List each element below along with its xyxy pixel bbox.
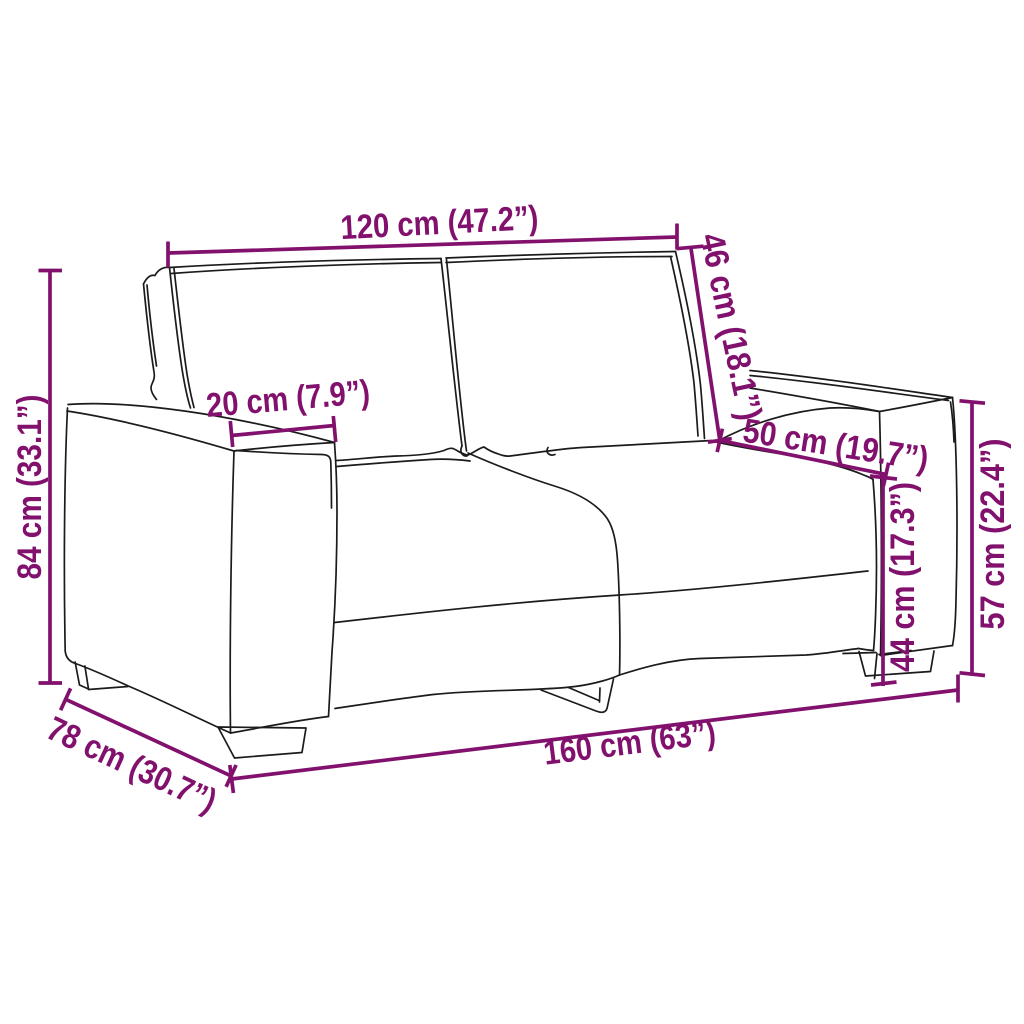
svg-text:20 cm (7.9”): 20 cm (7.9”) bbox=[205, 373, 372, 425]
svg-text:120 cm (47.2”): 120 cm (47.2”) bbox=[340, 199, 540, 247]
svg-text:44 cm (17.3”): 44 cm (17.3”) bbox=[884, 482, 922, 672]
svg-text:50 cm (19.7”): 50 cm (19.7”) bbox=[740, 412, 931, 479]
svg-text:160 cm (63”): 160 cm (63”) bbox=[541, 714, 717, 773]
svg-text:78 cm (30.7”): 78 cm (30.7”) bbox=[41, 710, 222, 821]
svg-text:57 cm (22.4”): 57 cm (22.4”) bbox=[974, 439, 1012, 630]
svg-text:84 cm (33.1”): 84 cm (33.1”) bbox=[11, 395, 49, 580]
